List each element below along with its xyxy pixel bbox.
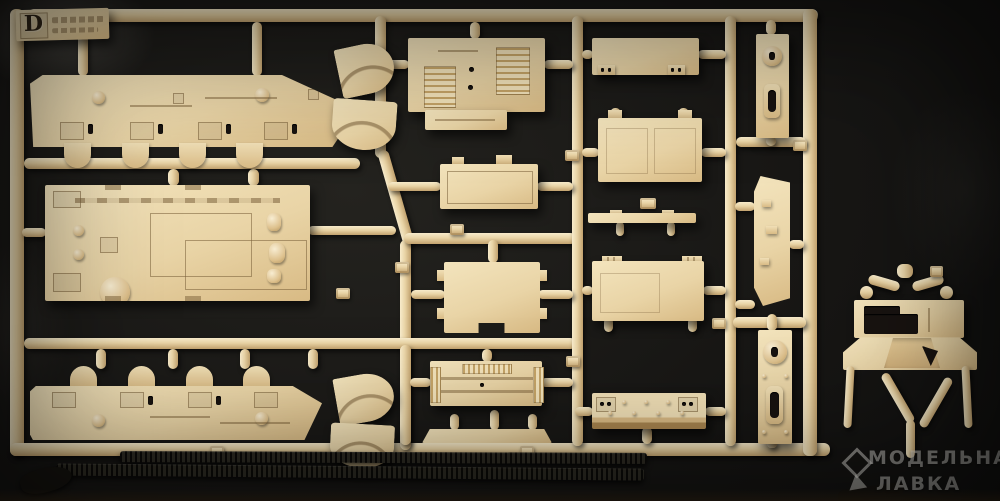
part-number-tab: [793, 140, 807, 151]
hinge-strip: [75, 198, 280, 203]
edge-tab: [539, 308, 547, 319]
rivet-hole: [480, 383, 484, 387]
part-angled-bar: [422, 429, 552, 443]
sprue-gate: [789, 240, 804, 249]
sprue-gate: [450, 414, 459, 430]
part-fender-quarter: [332, 369, 397, 426]
part-number-tab: [450, 224, 464, 235]
part-door-strip-upper: [756, 34, 789, 138]
panel-recess: [606, 128, 648, 174]
hinge-hole: [607, 402, 611, 406]
filler-cap: [73, 249, 84, 260]
sprue-gate: [488, 240, 498, 263]
part-hull-side-lower: [30, 386, 322, 440]
tag-embossed-text-line: [52, 27, 98, 33]
y-runner-arm: [918, 376, 954, 429]
part-flanged-bar: [588, 213, 696, 223]
part-number-tab: [640, 198, 656, 209]
louvre-grille: [496, 47, 530, 95]
rivet: [762, 374, 766, 378]
panel-line: [205, 97, 277, 99]
part-large-panel: [598, 118, 702, 182]
part-side-skirt-strip: [754, 176, 790, 306]
sprue-gate: [470, 22, 480, 39]
rivet: [784, 374, 788, 378]
suspension-mount: [60, 122, 84, 140]
locating-slot: [158, 124, 163, 134]
rivet: [680, 411, 684, 415]
sprue-gate: [537, 182, 573, 191]
rivet: [608, 411, 612, 415]
sprue-gate: [410, 378, 431, 387]
panel-recess: [600, 273, 660, 313]
skirt-bump: [766, 226, 777, 234]
part-hinged-panel: [592, 261, 704, 321]
panel-recess: [447, 171, 533, 204]
panel-line: [150, 416, 210, 418]
rivet: [666, 400, 670, 404]
slat-line: [434, 390, 538, 393]
sprue-gate: [698, 50, 726, 59]
hinge-hole: [671, 68, 674, 72]
edge-tab: [437, 308, 445, 319]
sprue-gate: [248, 169, 259, 186]
runner-vertical-4: [400, 345, 411, 445]
hook-runner-ball: [860, 286, 873, 299]
part-number-tab: [930, 266, 943, 277]
suspension-mount: [52, 392, 76, 408]
corner-plate: [53, 273, 81, 292]
part-number-tab: [395, 262, 409, 273]
locating-slot: [88, 124, 93, 134]
part-recessed-panel: [440, 164, 538, 209]
part-slatted-panel: [430, 361, 542, 406]
panel-line: [438, 50, 478, 52]
panel-line: [220, 422, 290, 424]
sprue-gate: [582, 148, 599, 157]
edge-nub: [185, 185, 201, 190]
roadwheel-bump: [243, 366, 270, 388]
axle-boss: [92, 91, 105, 104]
hatch-outline: [185, 240, 307, 290]
hatch-detail: [769, 52, 775, 60]
part-superstructure-glacis: [843, 336, 977, 370]
edge-nub: [105, 296, 121, 301]
hinge-nub: [598, 65, 615, 75]
hatch-detail: [771, 347, 778, 357]
sprue-gate: [528, 414, 537, 430]
hook-runner-ball: [940, 286, 953, 299]
part-engine-deck-grille-panel: [408, 38, 545, 112]
runner-vertical-2: [572, 16, 583, 446]
sprue-photo: D МОДЕЛЬНАЯ ЛАВКА: [0, 0, 1000, 501]
sprue-gate: [703, 286, 726, 295]
panel-line: [435, 119, 495, 121]
track-length-lower: [56, 463, 644, 480]
end-cap: [430, 367, 441, 403]
runner-vertical-3: [725, 16, 736, 446]
hinge-plate: [678, 397, 698, 412]
louvre-grille: [424, 66, 456, 108]
sprue-gate: [490, 410, 499, 430]
vision-slot: [768, 90, 776, 112]
part-notched-panel: [444, 262, 540, 333]
sprue-gate: [252, 22, 262, 76]
part-superstructure-plate: [854, 300, 964, 338]
suspension-mount: [198, 122, 222, 140]
sprue-gate: [616, 222, 624, 236]
part-number-tab: [336, 288, 350, 299]
part-door-strip-lower: [758, 330, 792, 444]
runner-top: [28, 9, 818, 22]
panel-line: [130, 105, 192, 107]
stowage-pad: [267, 213, 281, 231]
sprue-gate: [168, 169, 179, 186]
panel-line: [928, 308, 930, 332]
sprue-gate: [538, 290, 573, 299]
assembly-leg: [843, 366, 854, 428]
suspension-mount: [188, 392, 212, 408]
y-runner-arm: [880, 372, 916, 425]
roadwheel-bump: [186, 366, 213, 388]
sprue-gate: [767, 314, 777, 331]
rivet-hole: [468, 85, 473, 90]
suspension-mount: [264, 122, 288, 140]
skirt-bump: [762, 200, 771, 207]
sprue-tag-letter: D: [24, 11, 44, 37]
rivet: [632, 411, 636, 415]
sprue-gate: [541, 378, 573, 387]
tag-embossed-text-line: [52, 16, 104, 23]
axle-boss: [255, 88, 269, 102]
part-number-tab: [712, 318, 726, 329]
panel-recess: [308, 89, 319, 100]
sprue-gate: [575, 407, 593, 416]
part-number-tab: [565, 150, 579, 161]
sprue-gate: [642, 427, 652, 444]
part-hull-roof-panel: [45, 185, 310, 301]
hinge-nub: [668, 65, 685, 75]
edge-tab: [437, 270, 445, 281]
panel-recess: [173, 93, 184, 104]
tread-strip: [462, 364, 512, 374]
rivet: [656, 411, 660, 415]
part-riveted-plate: [592, 393, 706, 429]
hinge-hole: [682, 402, 686, 406]
assembly-leg: [961, 366, 972, 428]
sprue-gate: [96, 349, 106, 369]
edge-tab: [539, 270, 547, 281]
edge-nub: [105, 185, 121, 190]
hook-runner-center: [897, 264, 913, 278]
rivet: [644, 400, 648, 404]
end-cap: [533, 367, 544, 403]
vision-slot: [770, 392, 779, 418]
part-hull-side-upper: [30, 75, 345, 147]
hinge-plate: [596, 397, 616, 412]
rivet: [784, 430, 788, 434]
rivet: [622, 400, 626, 404]
part-hatch-panel-small: [592, 38, 699, 75]
rivet: [762, 430, 766, 434]
sprue-gate: [22, 228, 46, 237]
part-engine-deck-tab: [425, 110, 507, 130]
hinge-hole: [608, 68, 611, 72]
sprue-gate: [168, 349, 178, 369]
access-plate: [100, 237, 118, 253]
locating-slot: [148, 396, 153, 405]
stowage-pad: [267, 269, 281, 283]
opening-cutout: [864, 314, 918, 334]
hinge-hole: [600, 402, 604, 406]
roadwheel-bump: [128, 366, 155, 388]
sprue-gate: [544, 60, 573, 69]
hinge-hole: [689, 402, 693, 406]
filler-cap: [73, 225, 84, 236]
locating-slot: [292, 124, 297, 134]
part-number-tab: [566, 356, 580, 367]
edge-tab: [496, 155, 512, 164]
stowage-pad: [269, 243, 285, 263]
sprue-gate: [735, 300, 755, 309]
watermark-logo-triangle-icon: [847, 473, 867, 491]
rivet-hole: [469, 67, 474, 72]
locating-slot: [226, 124, 231, 134]
edge-nub: [185, 296, 201, 301]
slat-line: [434, 377, 538, 380]
sprue-gate: [411, 290, 445, 299]
sprue-gate: [766, 20, 776, 35]
suspension-mount: [130, 122, 154, 140]
hinge-hole: [678, 68, 681, 72]
watermark: МОДЕЛЬНАЯ ЛАВКА: [840, 444, 1000, 500]
rivet-hole: [330, 87, 335, 92]
background-highlight-right: [890, 90, 1000, 290]
runner-right: [803, 9, 817, 456]
sprue-gate: [701, 148, 726, 157]
roadwheel-bump: [70, 366, 97, 388]
round-hatch: [763, 340, 787, 364]
sprue-gate: [308, 226, 396, 235]
sprue-gate: [308, 349, 318, 369]
panel-recess: [654, 128, 696, 174]
sprue-gate: [388, 182, 441, 191]
sprue-gate: [240, 349, 250, 369]
suspension-mount: [120, 392, 144, 408]
runner-horizontal-lower: [24, 338, 576, 349]
watermark-line-1: МОДЕЛЬНАЯ: [868, 447, 1000, 469]
skirt-bump: [760, 258, 769, 265]
axle-boss: [92, 414, 105, 427]
part-fender-quarter: [333, 39, 398, 100]
sprue-gate: [705, 407, 726, 416]
track-length-upper: [120, 451, 647, 464]
sprue-tag: D: [16, 8, 110, 41]
locating-slot: [216, 396, 221, 405]
round-hatch: [762, 46, 782, 66]
suspension-mount: [254, 392, 278, 408]
sprue-gate: [735, 202, 755, 211]
hinge-hole: [601, 68, 604, 72]
watermark-line-2: ЛАВКА: [876, 473, 961, 495]
sprue-gate: [667, 222, 675, 236]
part-fender-quarter: [330, 98, 397, 152]
